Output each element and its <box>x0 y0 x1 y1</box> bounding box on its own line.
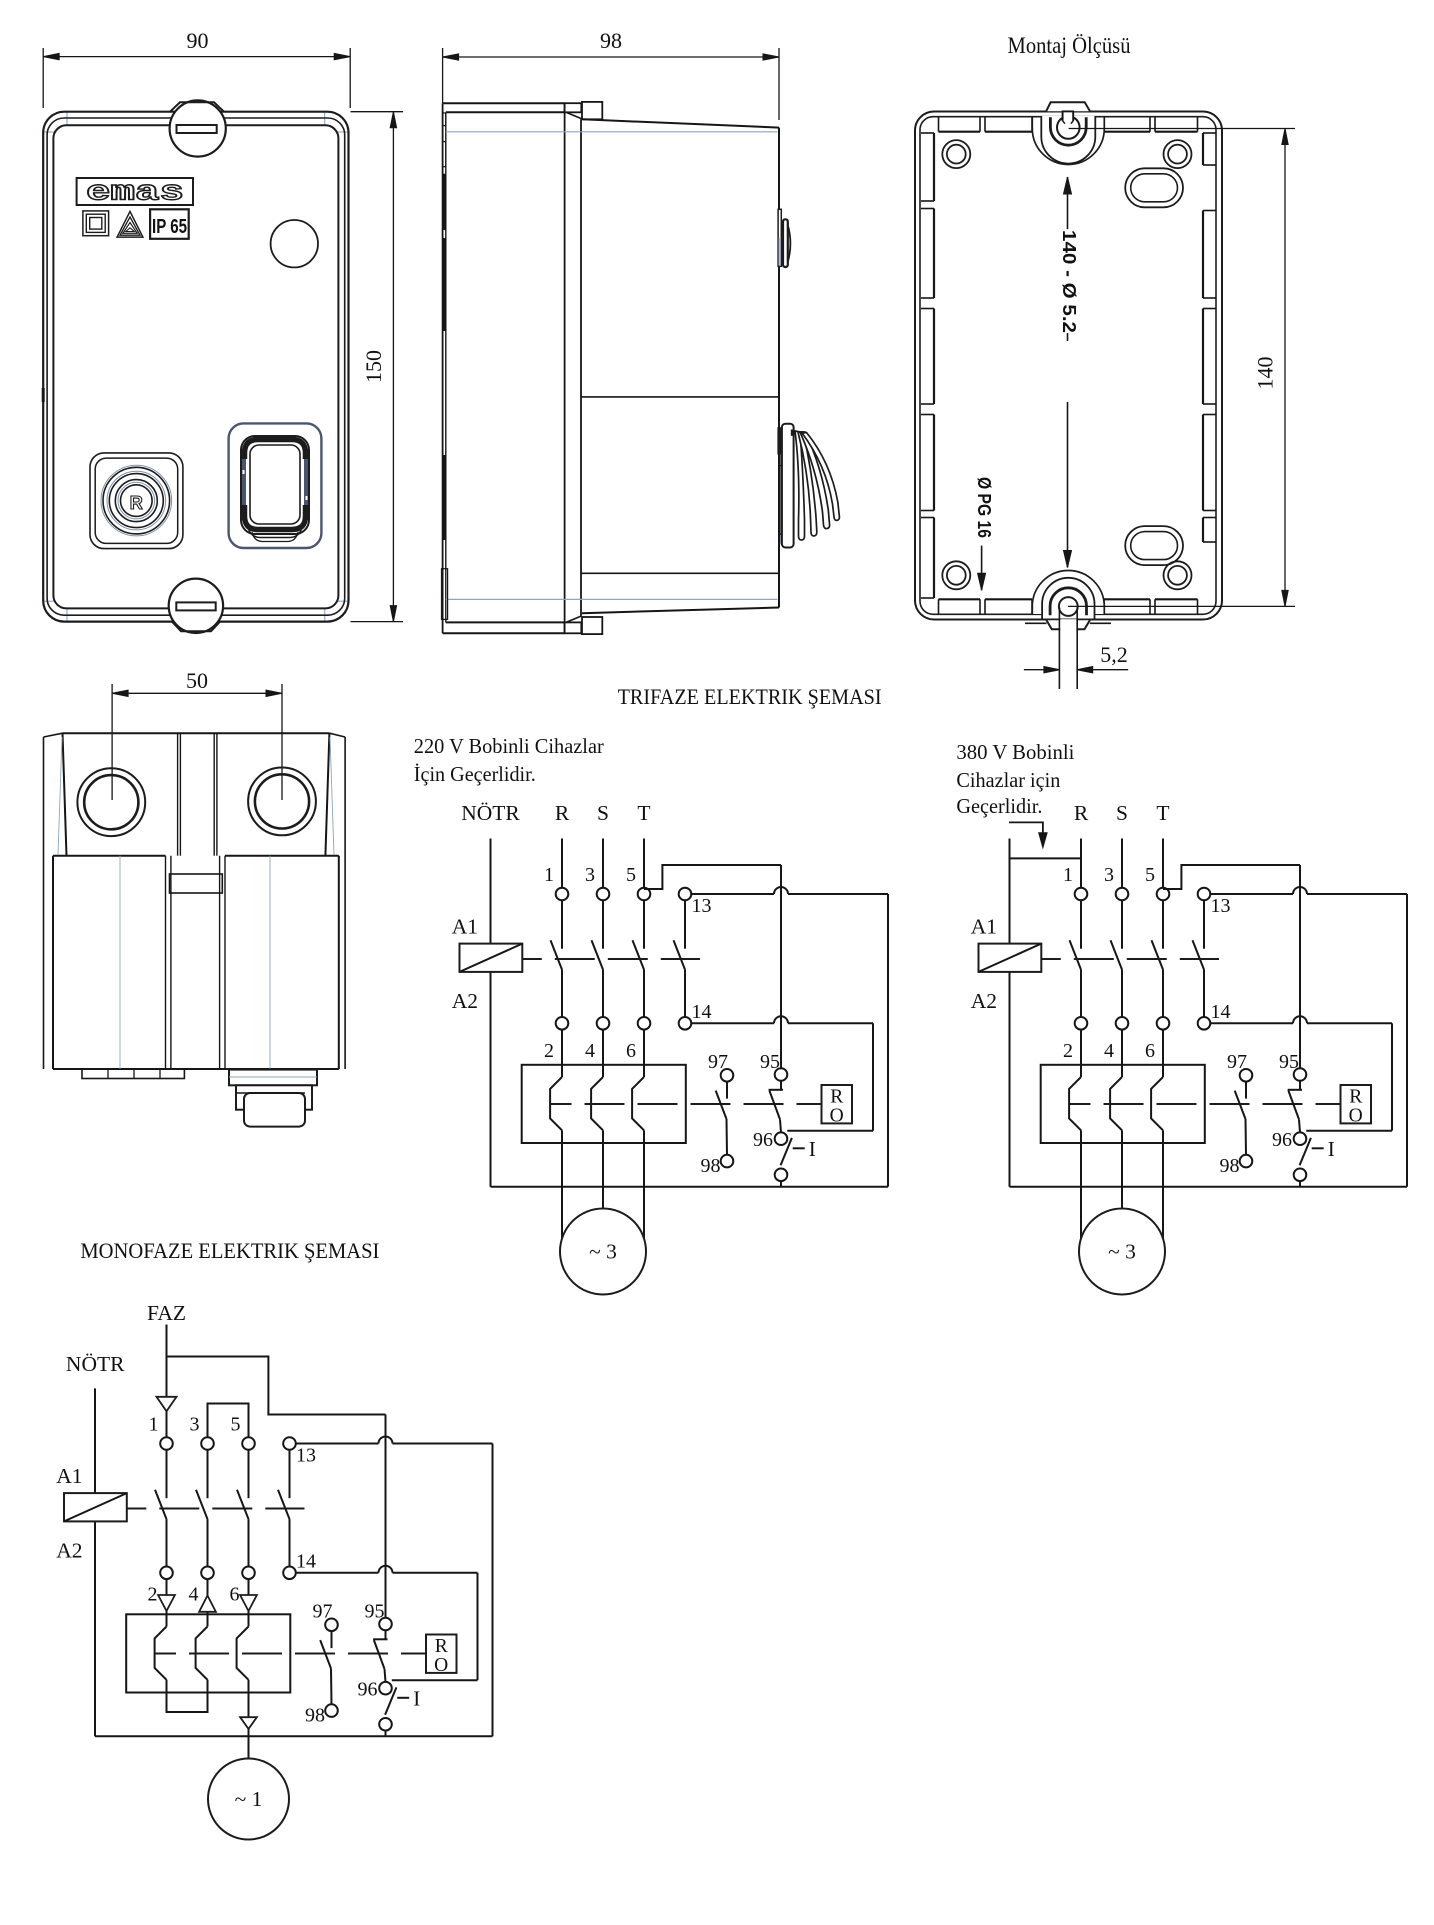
svg-text:140 - Ø 5.2: 140 - Ø 5.2 <box>1059 230 1080 333</box>
svg-text:~ 3: ~ 3 <box>1108 1240 1136 1264</box>
svg-text:140: 140 <box>1253 357 1278 390</box>
svg-text:A2: A2 <box>56 1539 82 1563</box>
svg-text:13: 13 <box>692 895 712 917</box>
svg-text:96: 96 <box>753 1129 773 1151</box>
svg-text:MONOFAZE ELEKTRIK ŞEMASI: MONOFAZE ELEKTRIK ŞEMASI <box>80 1238 379 1263</box>
svg-text:4: 4 <box>585 1040 595 1062</box>
svg-text:3: 3 <box>190 1414 200 1436</box>
svg-text:FAZ: FAZ <box>147 1301 186 1325</box>
svg-text:13: 13 <box>296 1445 316 1467</box>
svg-text:IP 65: IP 65 <box>152 216 187 238</box>
svg-text:5: 5 <box>231 1414 241 1436</box>
svg-text:6: 6 <box>626 1040 636 1062</box>
svg-text:Geçerlidir.: Geçerlidir. <box>956 794 1042 818</box>
svg-text:14: 14 <box>296 1551 316 1573</box>
svg-text:98: 98 <box>600 28 622 53</box>
svg-text:1: 1 <box>1063 864 1073 886</box>
svg-text:Montaj Ölçüsü: Montaj Ölçüsü <box>1008 33 1131 59</box>
svg-text:5: 5 <box>1145 864 1155 886</box>
svg-text:A2: A2 <box>452 989 478 1013</box>
svg-text:2: 2 <box>544 1040 554 1062</box>
svg-text:220 V Bobinli Cihazlar: 220 V Bobinli Cihazlar <box>414 734 604 758</box>
svg-text:6: 6 <box>1145 1040 1155 1062</box>
svg-text:R: R <box>435 1636 448 1657</box>
svg-text:2: 2 <box>1063 1040 1073 1062</box>
svg-text:3: 3 <box>585 864 595 886</box>
svg-text:380 V Bobinli: 380 V Bobinli <box>956 740 1074 764</box>
svg-text:96: 96 <box>358 1679 378 1701</box>
svg-text:A1: A1 <box>452 915 478 939</box>
svg-text:R: R <box>130 493 143 513</box>
svg-text:4: 4 <box>1104 1040 1114 1062</box>
svg-text:TRIFAZE ELEKTRIK ŞEMASI: TRIFAZE ELEKTRIK ŞEMASI <box>618 684 882 709</box>
svg-text:96: 96 <box>1272 1129 1292 1151</box>
svg-text:1: 1 <box>544 864 554 886</box>
svg-text:2: 2 <box>148 1584 158 1606</box>
svg-text:~ 1: ~ 1 <box>235 1787 263 1811</box>
svg-text:5: 5 <box>626 864 636 886</box>
svg-text:R: R <box>830 1087 843 1108</box>
svg-text:5,2: 5,2 <box>1100 642 1128 667</box>
svg-text:S: S <box>597 801 609 825</box>
svg-text:4: 4 <box>189 1584 199 1606</box>
svg-text:14: 14 <box>1211 1001 1231 1023</box>
svg-text:~ 3: ~ 3 <box>589 1240 617 1264</box>
svg-text:A1: A1 <box>971 915 997 939</box>
svg-text:S: S <box>1116 801 1128 825</box>
svg-text:emas: emas <box>86 178 184 209</box>
svg-text:50: 50 <box>186 668 208 693</box>
svg-text:I: I <box>1328 1137 1335 1161</box>
svg-text:O: O <box>830 1106 844 1127</box>
svg-text:I: I <box>809 1137 816 1161</box>
svg-text:Ø PG 16: Ø PG 16 <box>974 477 995 538</box>
svg-text:O: O <box>434 1655 448 1676</box>
svg-text:R: R <box>555 801 570 825</box>
svg-text:NÖTR: NÖTR <box>461 801 520 825</box>
svg-text:Cihazlar için: Cihazlar için <box>956 768 1060 792</box>
svg-text:R: R <box>1349 1087 1362 1108</box>
svg-text:98: 98 <box>1220 1155 1240 1177</box>
svg-text:3: 3 <box>1104 864 1114 886</box>
svg-text:6: 6 <box>230 1584 240 1606</box>
svg-text:NÖTR: NÖTR <box>66 1352 125 1376</box>
svg-text:150: 150 <box>361 350 386 383</box>
svg-text:A2: A2 <box>971 989 997 1013</box>
svg-text:14: 14 <box>692 1001 712 1023</box>
svg-text:T: T <box>1156 801 1169 825</box>
svg-text:90: 90 <box>187 28 209 53</box>
svg-text:13: 13 <box>1211 895 1231 917</box>
svg-text:R: R <box>1074 801 1089 825</box>
svg-text:O: O <box>1349 1106 1363 1127</box>
svg-text:98: 98 <box>305 1705 325 1727</box>
svg-text:98: 98 <box>701 1155 721 1177</box>
svg-text:A1: A1 <box>56 1464 82 1488</box>
svg-text:T: T <box>637 801 650 825</box>
svg-text:İçin Geçerlidir.: İçin Geçerlidir. <box>414 762 536 786</box>
svg-text:I: I <box>413 1687 420 1711</box>
svg-text:1: 1 <box>149 1414 159 1436</box>
